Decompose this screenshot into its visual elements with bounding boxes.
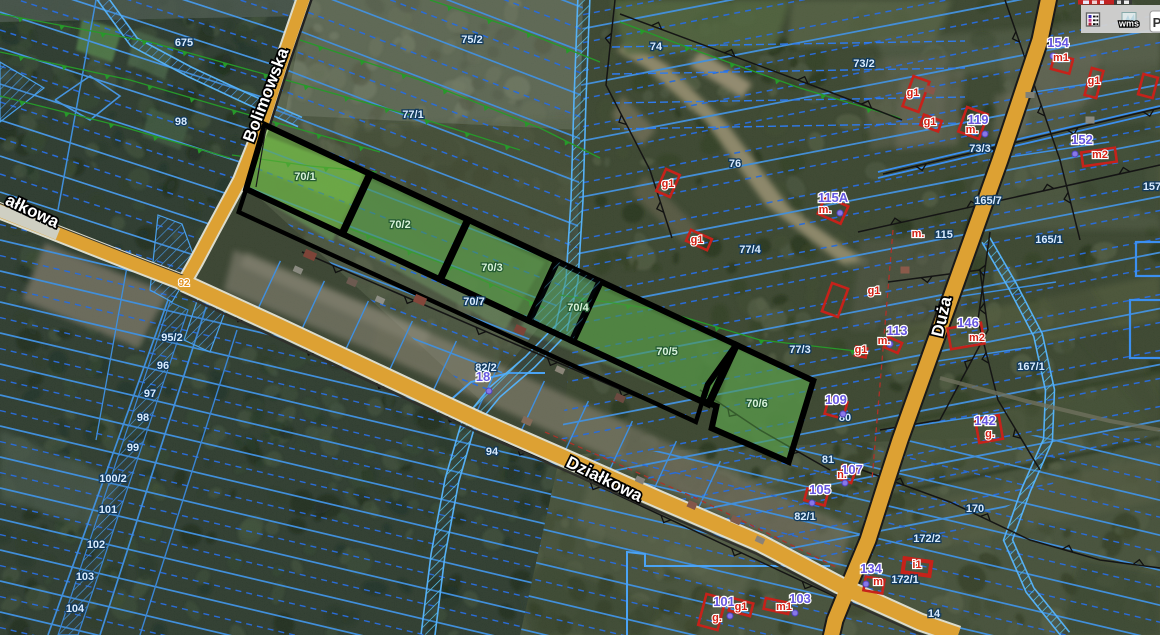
svg-text:172/1: 172/1	[891, 574, 919, 586]
svg-text:70/7: 70/7	[463, 296, 484, 308]
svg-text:152: 152	[1071, 132, 1093, 147]
svg-text:77/1: 77/1	[402, 109, 423, 121]
svg-text:154: 154	[1047, 35, 1069, 50]
svg-text:105: 105	[809, 482, 831, 497]
svg-text:81: 81	[822, 454, 834, 466]
svg-text:115: 115	[935, 229, 953, 241]
svg-text:103: 103	[789, 591, 811, 606]
svg-text:100/2: 100/2	[99, 473, 127, 485]
svg-text:g1: g1	[868, 285, 881, 297]
svg-text:101: 101	[713, 594, 735, 609]
svg-text:70/3: 70/3	[481, 262, 502, 274]
svg-text:70/1: 70/1	[294, 171, 315, 183]
svg-text:142: 142	[974, 413, 996, 428]
svg-text:675: 675	[175, 37, 193, 49]
svg-text:g.: g.	[712, 612, 722, 624]
svg-text:77/4: 77/4	[739, 244, 761, 256]
svg-text:g.: g.	[985, 428, 995, 440]
svg-text:170: 170	[966, 503, 984, 515]
svg-text:98: 98	[137, 412, 149, 424]
svg-text:73/2: 73/2	[853, 58, 874, 70]
svg-text:g1: g1	[924, 116, 937, 128]
svg-text:102: 102	[87, 539, 105, 551]
svg-text:94: 94	[486, 446, 499, 458]
svg-text:70/4: 70/4	[567, 302, 589, 314]
svg-text:i1: i1	[912, 559, 921, 571]
svg-text:134: 134	[860, 561, 882, 576]
svg-text:m.: m.	[878, 335, 891, 347]
svg-text:167/1: 167/1	[1017, 361, 1045, 373]
svg-text:82/1: 82/1	[794, 511, 815, 523]
svg-text:73/3: 73/3	[969, 143, 990, 155]
svg-text:P: P	[1153, 15, 1160, 30]
svg-text:m1: m1	[1053, 52, 1069, 64]
svg-text:m.: m.	[966, 124, 979, 136]
svg-text:m.: m.	[819, 204, 832, 216]
svg-text:14: 14	[928, 608, 941, 620]
svg-text:101: 101	[99, 504, 117, 516]
svg-text:165/7: 165/7	[974, 195, 1002, 207]
svg-text:165/1: 165/1	[1035, 234, 1063, 246]
svg-text:115A: 115A	[818, 190, 849, 205]
svg-text:m2: m2	[969, 332, 985, 344]
svg-text:172/2: 172/2	[913, 533, 941, 545]
svg-text:m1: m1	[776, 601, 792, 613]
svg-text:75/2: 75/2	[461, 34, 482, 46]
svg-text:99: 99	[127, 442, 139, 454]
svg-text:g1: g1	[662, 178, 675, 190]
svg-text:m: m	[873, 576, 883, 588]
svg-text:g1: g1	[691, 234, 704, 246]
svg-text:g1: g1	[1088, 75, 1101, 87]
svg-text:76: 76	[729, 158, 741, 170]
svg-text:g1: g1	[855, 344, 868, 356]
svg-text:92: 92	[178, 278, 190, 289]
svg-text:95/2: 95/2	[161, 332, 182, 344]
svg-text:74: 74	[650, 41, 663, 53]
svg-text:104: 104	[66, 603, 85, 615]
svg-text:m.: m.	[912, 228, 925, 240]
svg-text:n.: n.	[837, 469, 847, 481]
svg-text:98: 98	[175, 116, 187, 128]
svg-text:146: 146	[957, 315, 979, 330]
svg-text:70/2: 70/2	[389, 219, 410, 231]
svg-text:18: 18	[476, 369, 490, 384]
svg-text:103: 103	[76, 571, 94, 583]
svg-text:g1: g1	[735, 601, 748, 613]
svg-text:70/6: 70/6	[746, 398, 767, 410]
svg-text:70/5: 70/5	[656, 346, 677, 358]
svg-text:109: 109	[825, 392, 847, 407]
svg-text:m2: m2	[1092, 149, 1108, 161]
svg-text:157: 157	[1143, 181, 1160, 193]
svg-text:96: 96	[157, 360, 169, 372]
svg-text:g1: g1	[907, 87, 920, 99]
svg-text:wms: wms	[1118, 19, 1139, 29]
svg-text:77/3: 77/3	[789, 344, 810, 356]
svg-text:97: 97	[144, 388, 156, 400]
